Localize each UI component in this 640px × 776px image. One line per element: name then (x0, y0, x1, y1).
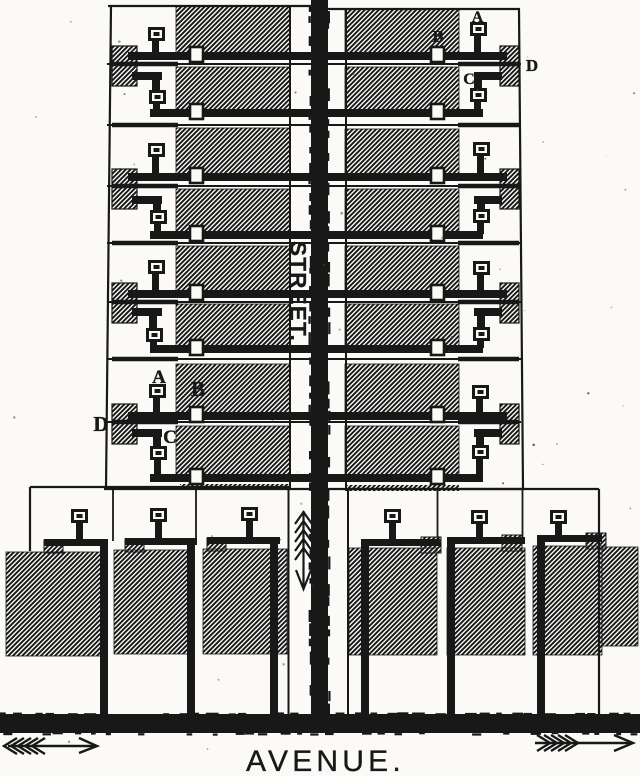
svg-text:C: C (163, 427, 177, 448)
svg-text:A: A (152, 367, 166, 388)
svg-text:D: D (93, 412, 108, 436)
svg-text:C: C (463, 71, 475, 88)
svg-text:B: B (432, 27, 443, 46)
svg-text:B: B (191, 377, 205, 401)
svg-text:STREET.: STREET. (286, 241, 311, 342)
svg-text:AVENUE.: AVENUE. (246, 745, 405, 776)
svg-text:D: D (526, 56, 538, 75)
svg-text:A: A (472, 9, 484, 26)
